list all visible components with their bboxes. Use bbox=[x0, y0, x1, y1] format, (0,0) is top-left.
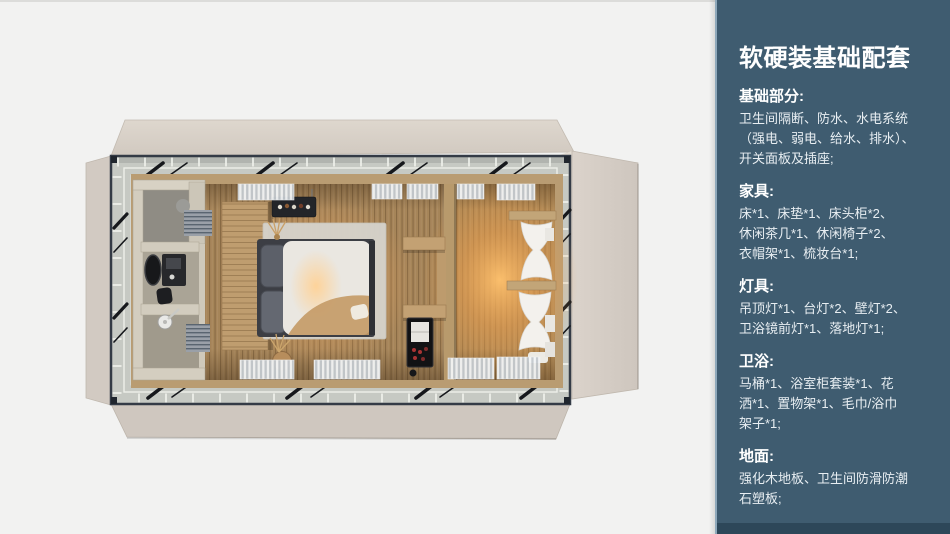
section-sanitary-body: 马桶*1、浴室柜套装*1、花 洒*1、置物架*1、毛巾/浴巾 架子*1; bbox=[739, 374, 940, 434]
vanity-mirror bbox=[145, 255, 161, 285]
bed-pillow-1 bbox=[261, 245, 286, 287]
section-sanitary-heading: 卫浴: bbox=[739, 352, 940, 371]
wall-unit-3 bbox=[545, 342, 555, 357]
minibar-cabinet bbox=[407, 318, 433, 367]
bathroom-shelf-divider-2 bbox=[141, 304, 199, 315]
bed-footboard bbox=[369, 241, 375, 335]
bathroom-wall-right-lower bbox=[199, 244, 205, 380]
section-flooring: 地面: 强化木地板、卫生间防滑防潮 石塑板; bbox=[739, 447, 940, 509]
hand-shower-head bbox=[163, 320, 167, 324]
wall-unit-2 bbox=[545, 315, 555, 332]
bathroom-shelf-divider-1 bbox=[141, 242, 199, 252]
kettle bbox=[410, 370, 417, 377]
panel-bottom-strip bbox=[717, 523, 950, 534]
slide: 软硬装基础配套 基础部分: 卫生间隔断、防水、水电系统 （强电、弱电、给水、排水… bbox=[0, 0, 950, 534]
section-basics-heading: 基础部分: bbox=[739, 87, 940, 106]
vanity-stool bbox=[156, 287, 173, 305]
bed-pillow-2 bbox=[261, 291, 286, 333]
wall-shelf-upper bbox=[403, 237, 445, 250]
section-flooring-heading: 地面: bbox=[739, 447, 940, 466]
section-furniture: 家具: 床*1、床垫*1、床头柜*2、 休闲茶几*1、休闲椅子*2、 衣帽架*1… bbox=[739, 182, 940, 264]
section-lighting-heading: 灯具: bbox=[739, 277, 940, 296]
curtain-rail-top bbox=[509, 211, 556, 220]
vanity-tray bbox=[166, 258, 181, 269]
bathroom-zone bbox=[133, 180, 212, 380]
wall-unit-1 bbox=[545, 228, 554, 241]
section-furniture-heading: 家具: bbox=[739, 182, 940, 201]
towel-radiator-top bbox=[184, 210, 212, 236]
shadow-bottom bbox=[127, 438, 556, 439]
shell-panel-right bbox=[572, 151, 638, 399]
section-lighting-body: 吊顶灯*1、台灯*2、壁灯*2、 卫浴镜前灯*1、落地灯*1; bbox=[739, 299, 940, 339]
spec-panel: 软硬装基础配套 基础部分: 卫生间隔断、防水、水电系统 （强电、弱电、给水、排水… bbox=[715, 0, 950, 534]
section-furniture-body: 床*1、床垫*1、床头柜*2、 休闲茶几*1、休闲椅子*2、 衣帽架*1、梳妆台… bbox=[739, 204, 940, 264]
shell-panel-left bbox=[86, 156, 111, 405]
panel-title: 软硬装基础配套 bbox=[739, 44, 940, 74]
section-basics-body: 卫生间隔断、防水、水电系统 （强电、弱电、给水、排水）、 开关面板及插座; bbox=[739, 109, 940, 169]
plant-pot-top bbox=[274, 234, 280, 240]
floorplan-stage bbox=[0, 0, 715, 534]
section-basics: 基础部分: 卫生间隔断、防水、水电系统 （强电、弱电、给水、排水）、 开关面板及… bbox=[739, 87, 940, 169]
bathroom-floor-top bbox=[143, 190, 189, 242]
partition-shadow bbox=[454, 184, 457, 380]
wall-shelf-upper-shadow bbox=[403, 250, 445, 253]
section-sanitary: 卫浴: 马桶*1、浴室柜套装*1、花 洒*1、置物架*1、毛巾/浴巾 架子*1; bbox=[739, 352, 940, 434]
section-lighting: 灯具: 吊顶灯*1、台灯*2、壁灯*2、 卫浴镜前灯*1、落地灯*1; bbox=[739, 277, 940, 339]
vanity-dish bbox=[170, 275, 175, 280]
floorplan-render bbox=[0, 0, 715, 534]
wall-shelf-lower bbox=[403, 305, 446, 318]
bathroom-wall-left bbox=[133, 180, 143, 378]
towel-radiator-bottom bbox=[186, 324, 210, 352]
shell-panel-top bbox=[111, 120, 574, 156]
shell-panel-bottom bbox=[111, 404, 570, 439]
curtain-rail-bottom bbox=[507, 281, 556, 290]
walkway-shadow bbox=[112, 157, 569, 163]
section-flooring-body: 强化木地板、卫生间防滑防潮 石塑板; bbox=[739, 469, 940, 509]
bathroom-wall-bottom bbox=[133, 368, 205, 380]
